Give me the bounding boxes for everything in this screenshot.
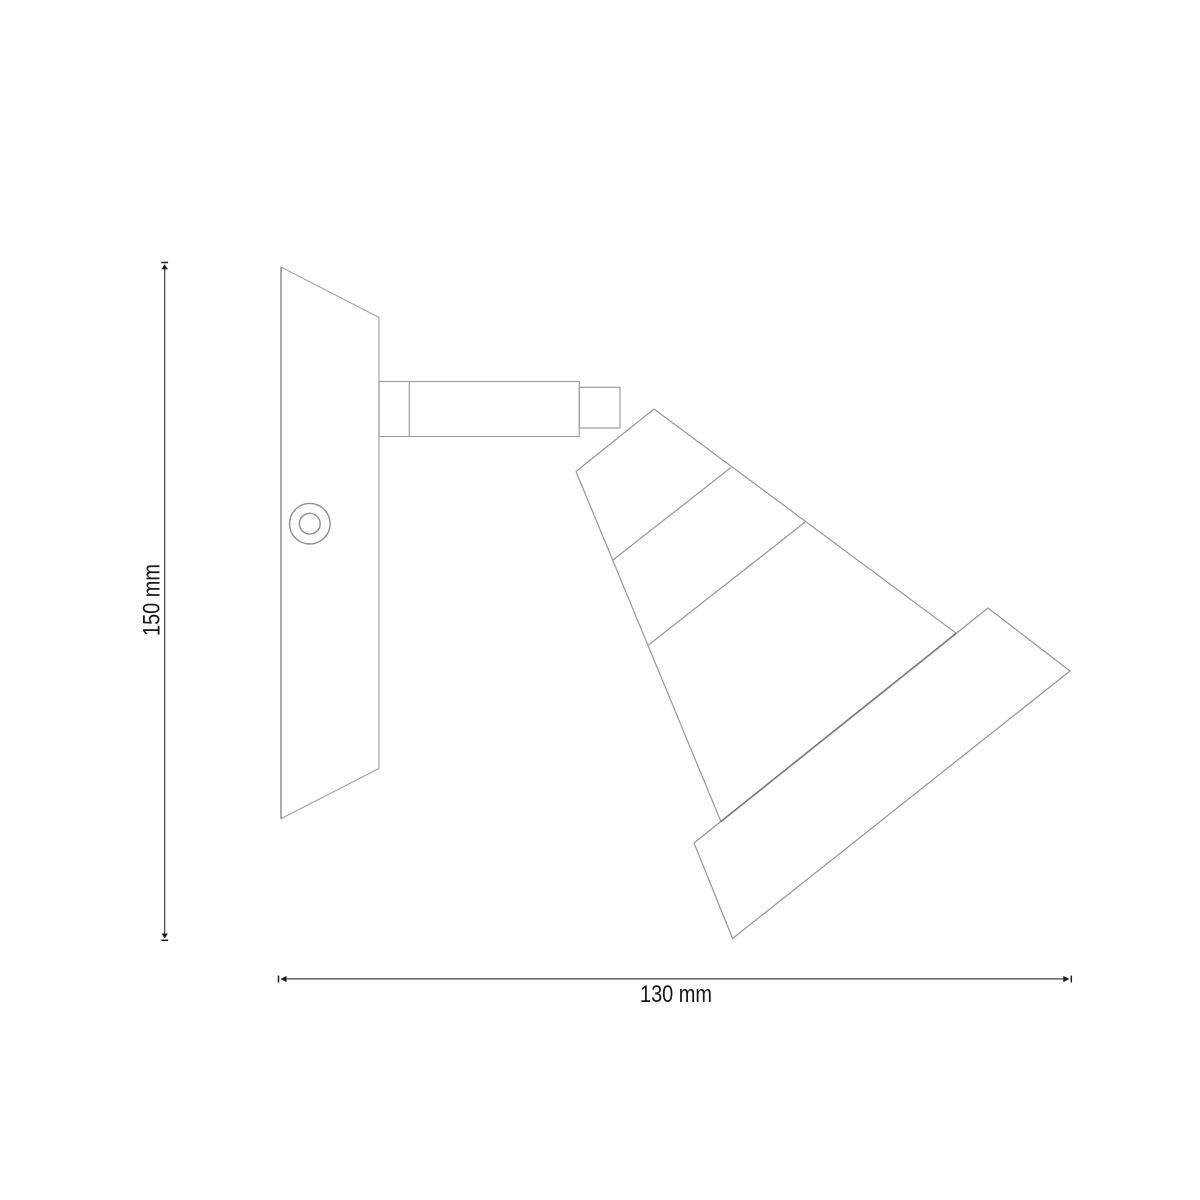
svg-text:130 mm: 130 mm — [640, 981, 712, 1008]
svg-text:150 mm: 150 mm — [139, 564, 166, 636]
